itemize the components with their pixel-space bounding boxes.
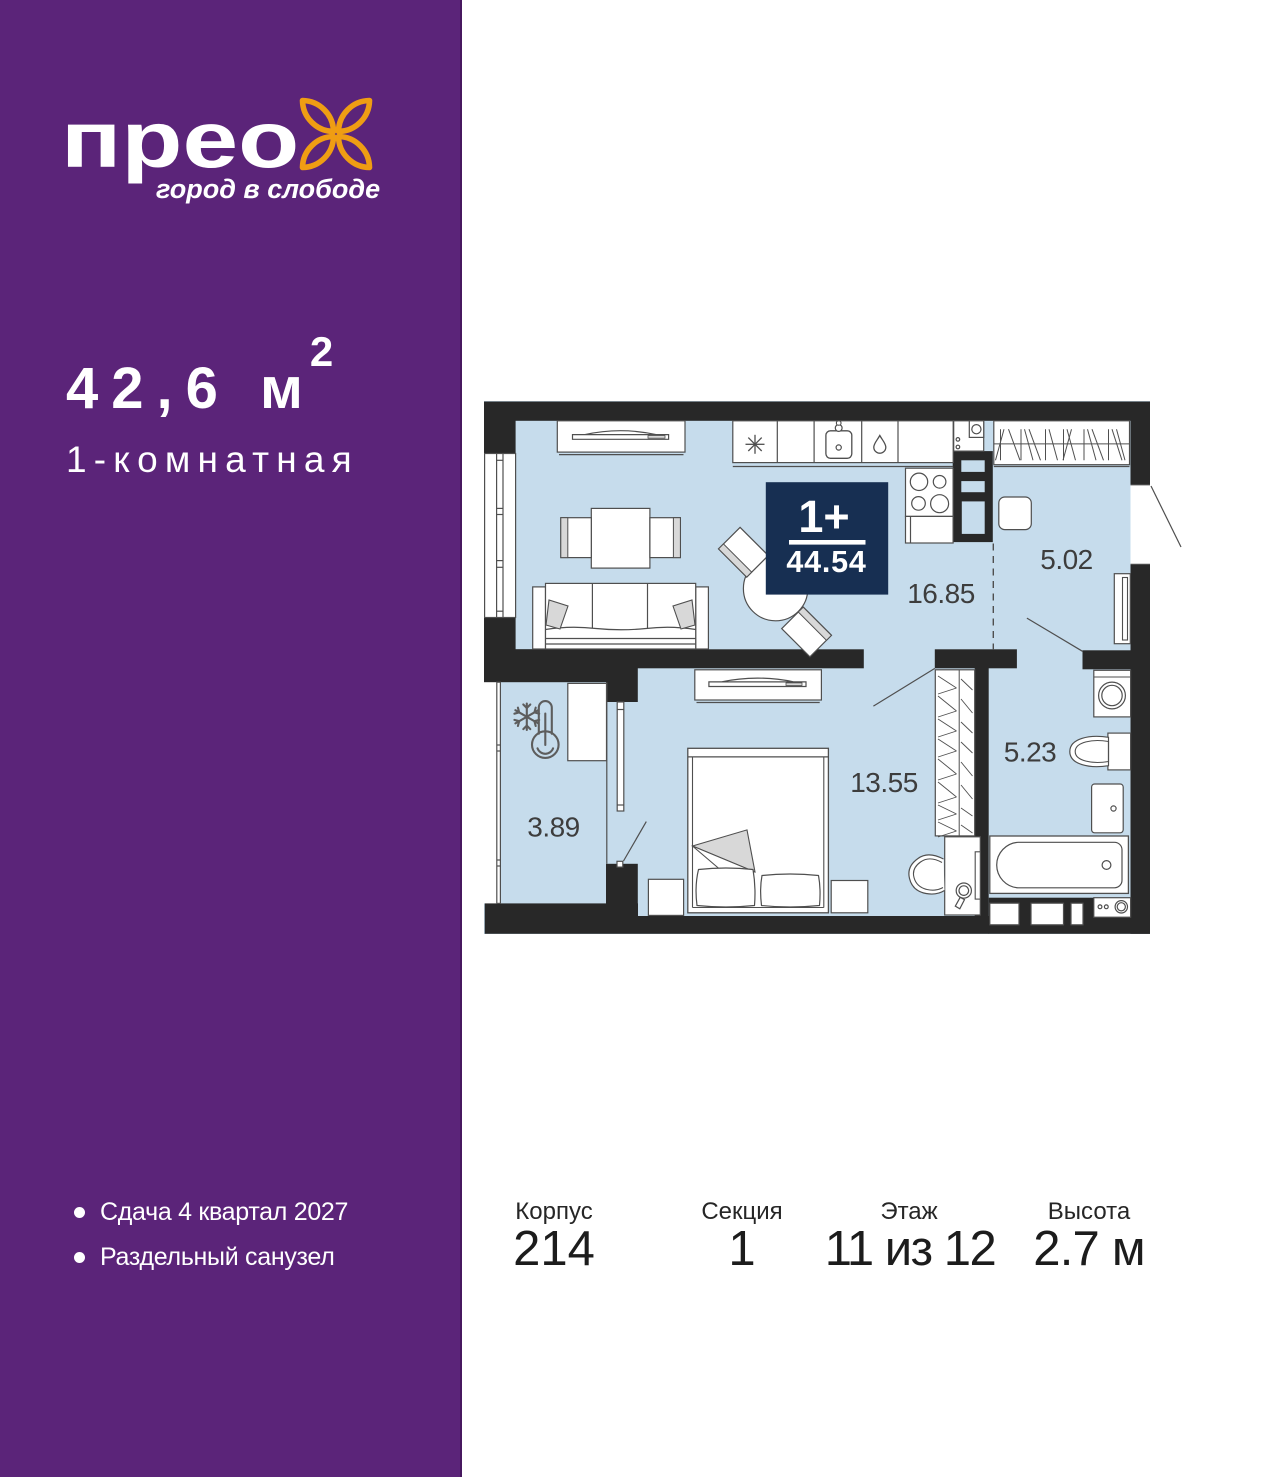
svg-text:1+: 1+	[798, 491, 849, 542]
svg-text:16.85: 16.85	[907, 578, 975, 609]
svg-text:5.02: 5.02	[1040, 544, 1093, 575]
svg-text:3.89: 3.89	[527, 812, 580, 843]
svg-text:5.23: 5.23	[1004, 737, 1057, 768]
svg-text:13.55: 13.55	[850, 767, 918, 798]
svg-text:44.54: 44.54	[786, 545, 866, 579]
